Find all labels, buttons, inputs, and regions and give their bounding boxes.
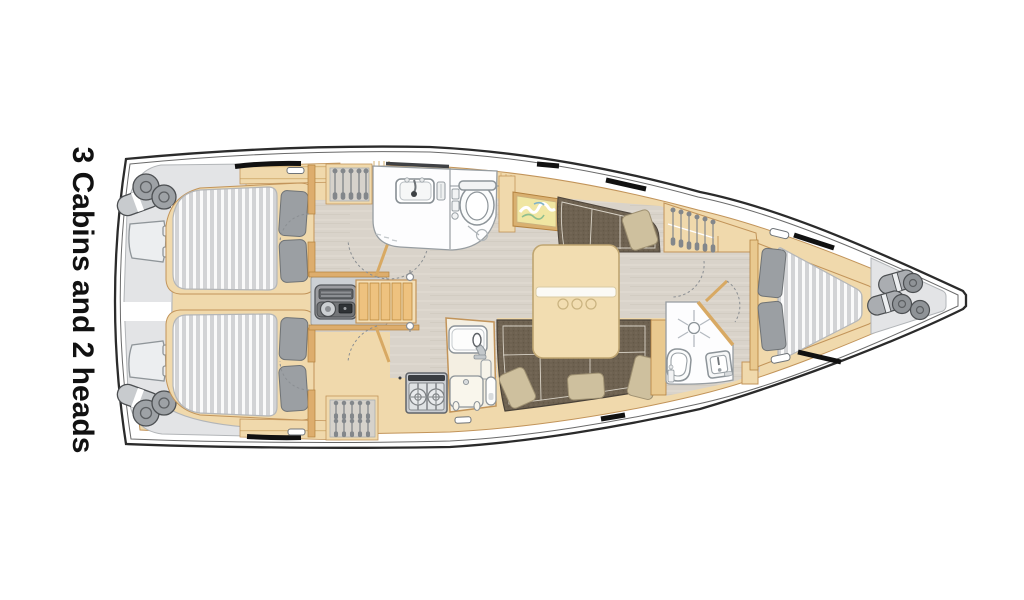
svg-text:3 Cabins and 2 heads: 3 Cabins and 2 heads: [66, 147, 99, 454]
